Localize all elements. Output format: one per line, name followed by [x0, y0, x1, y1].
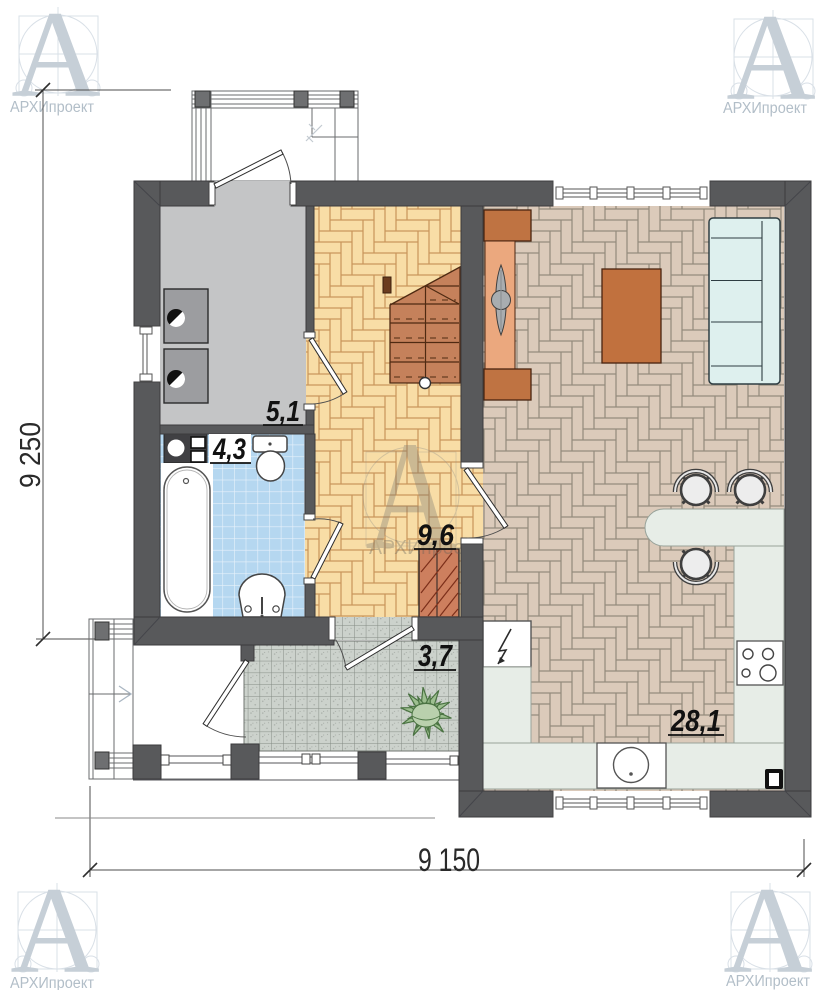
svg-text:9 150: 9 150: [418, 842, 480, 878]
svg-text:5,1: 5,1: [266, 396, 300, 428]
svg-text:АРХИпроект: АРХИпроект: [726, 973, 810, 990]
svg-text:28,1: 28,1: [670, 703, 721, 738]
svg-text:9 250: 9 250: [15, 422, 47, 488]
svg-text:9,6: 9,6: [417, 519, 454, 552]
svg-text:4,3: 4,3: [212, 433, 246, 466]
svg-text:АРХИпроект: АРХИпроект: [10, 975, 94, 990]
svg-text:АРХИпроект: АРХИпроект: [723, 100, 807, 117]
svg-text:АРХИпроект: АРХИпроект: [10, 99, 94, 116]
svg-text:3,7: 3,7: [418, 638, 453, 673]
